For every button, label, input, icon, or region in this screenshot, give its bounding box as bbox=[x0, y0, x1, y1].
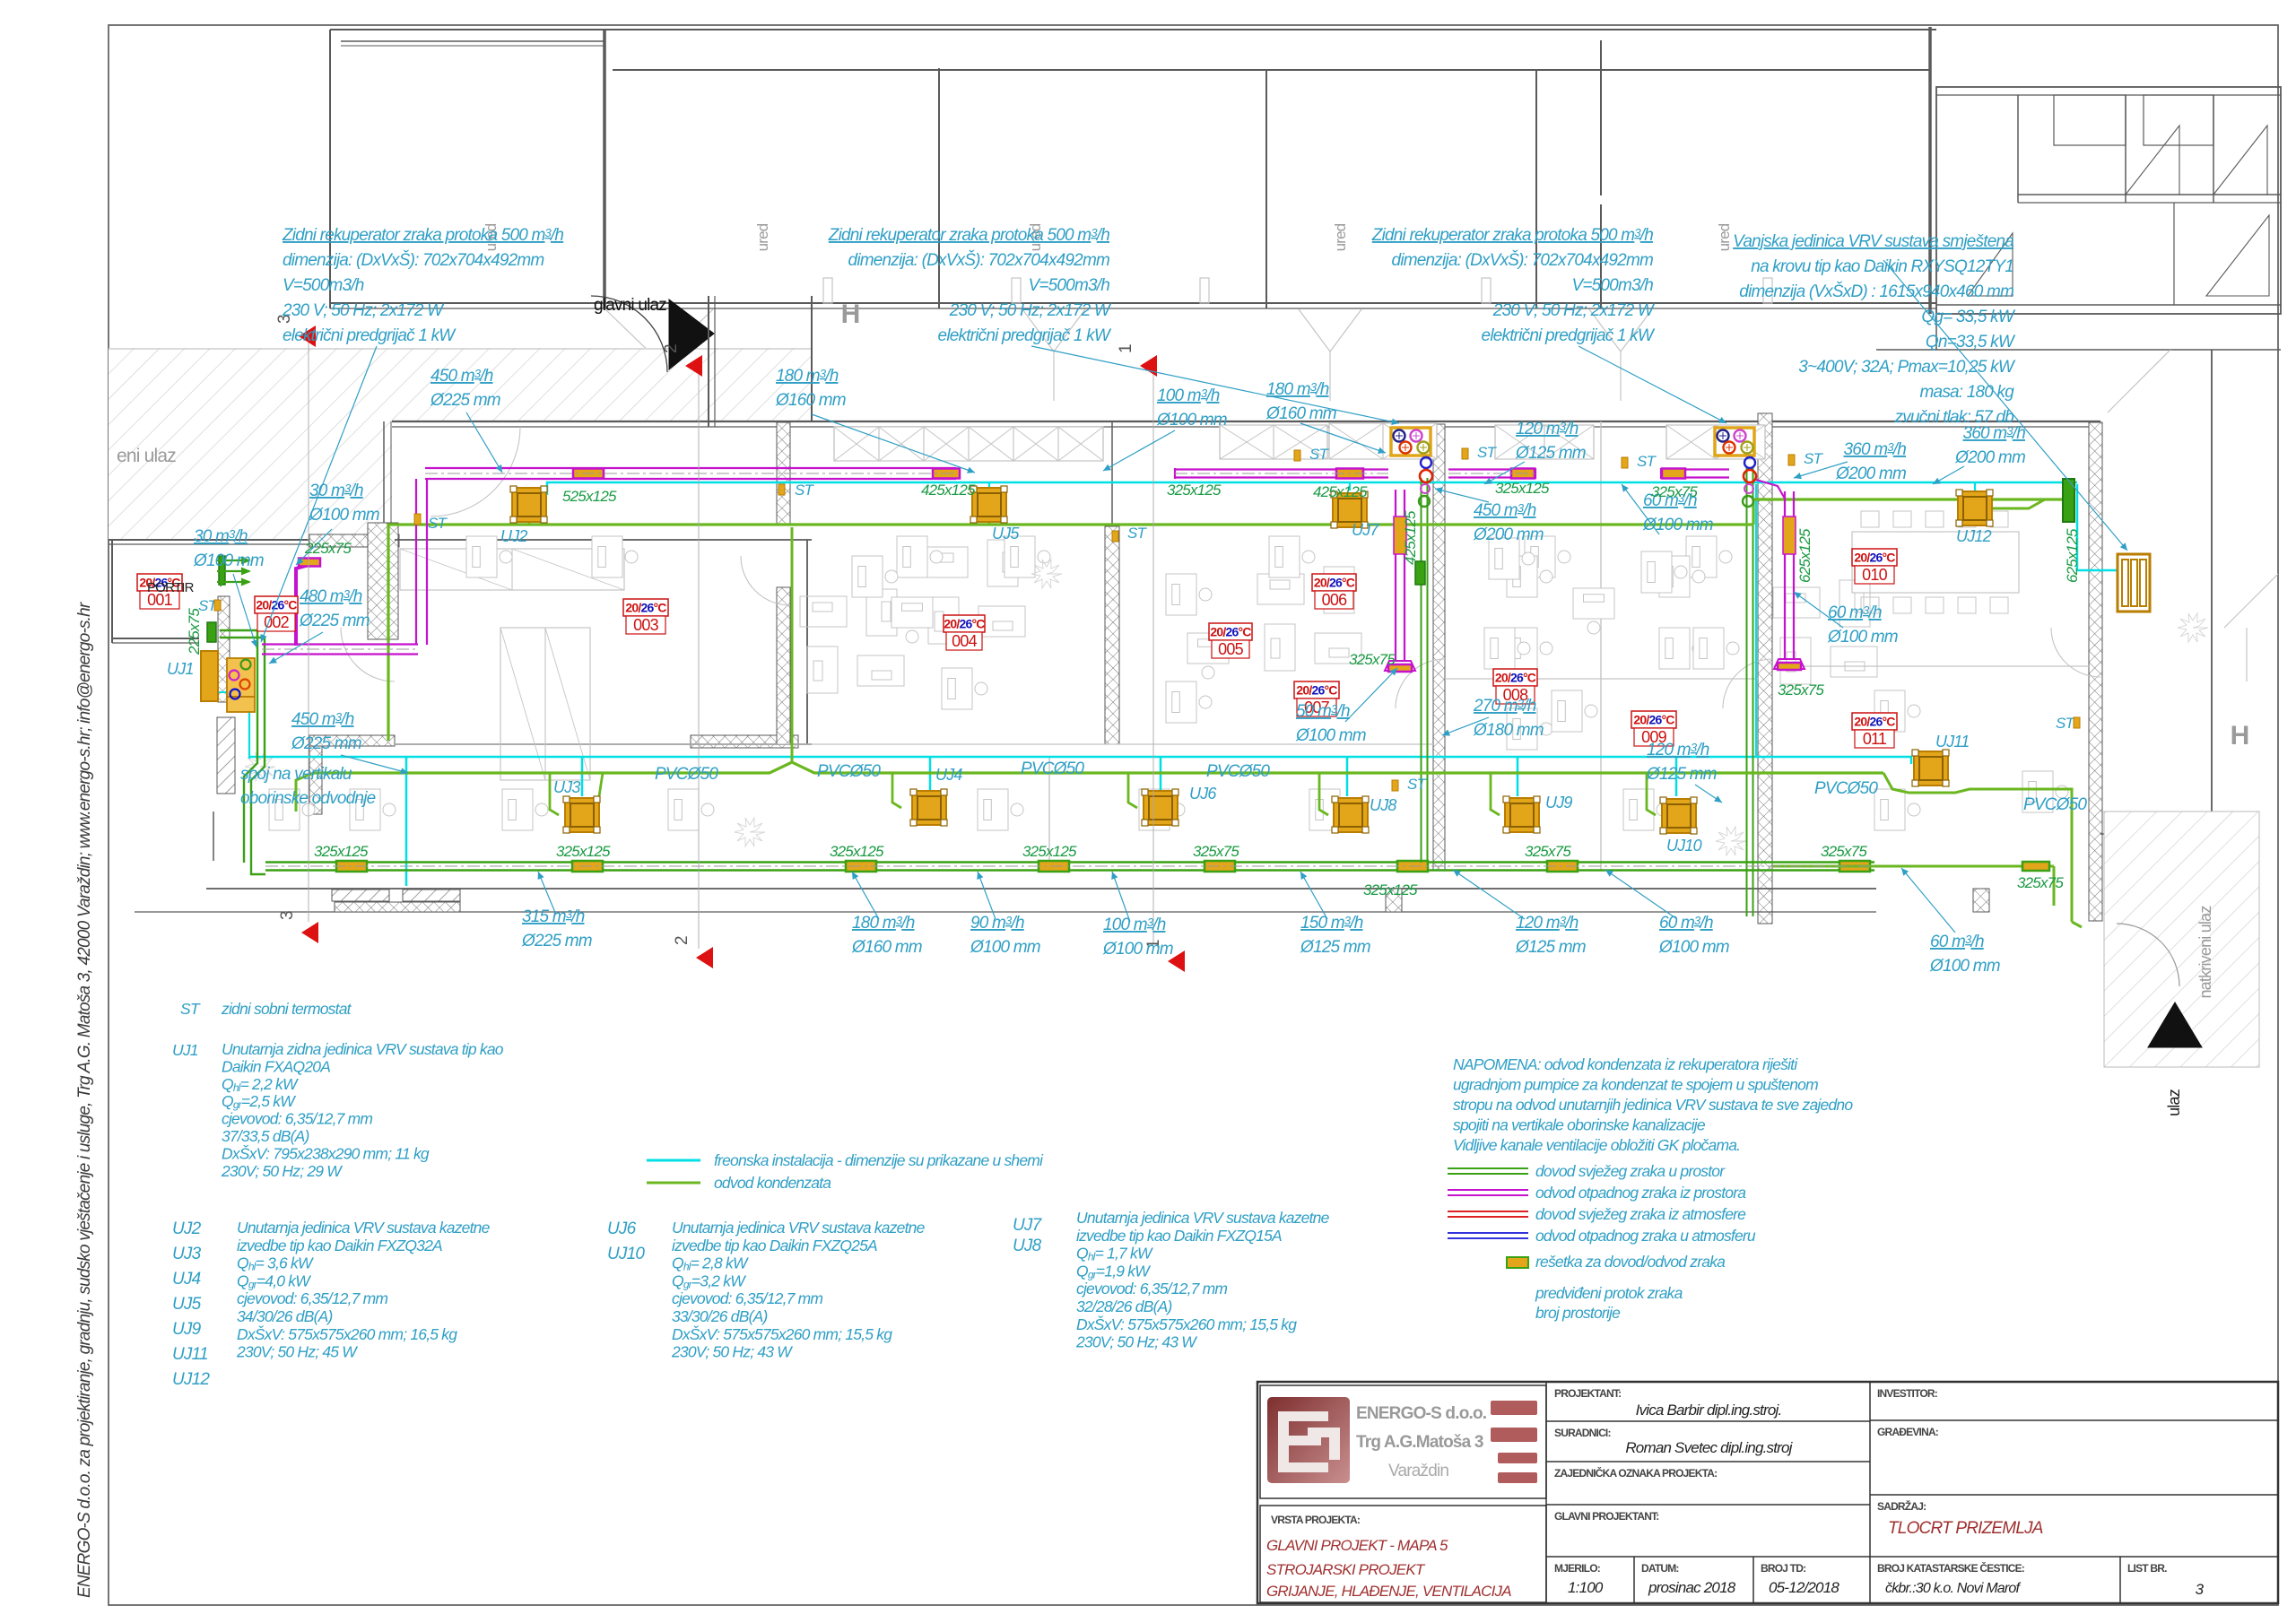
svg-text:Ø225 mm: Ø225 mm bbox=[291, 734, 361, 753]
svg-text:ured: ured bbox=[754, 223, 771, 251]
svg-text:broj prostorije: broj prostorije bbox=[1535, 1304, 1621, 1322]
svg-text:625x125: 625x125 bbox=[2064, 528, 2081, 583]
svg-text:425x125: 425x125 bbox=[1402, 510, 1419, 565]
svg-text:UJ10: UJ10 bbox=[1666, 837, 1702, 855]
svg-text:230 V; 50 Hz; 2x172 W: 230 V; 50 Hz; 2x172 W bbox=[1492, 301, 1656, 320]
svg-text:PVCØ50: PVCØ50 bbox=[2023, 795, 2087, 814]
svg-text:230 V; 50 Hz; 2x172 W: 230 V; 50 Hz; 2x172 W bbox=[949, 301, 1112, 320]
svg-text:120 m3/h: 120 m3/h bbox=[1516, 914, 1578, 933]
svg-text:dimenzija: (DxVxŠ): 702x704x49: dimenzija: (DxVxŠ): 702x704x492mm bbox=[848, 250, 1109, 270]
svg-text:PORTIR: PORTIR bbox=[147, 580, 195, 595]
svg-text:električni predgrijač 1 kW: električni predgrijač 1 kW bbox=[938, 326, 1112, 345]
svg-text:325x125: 325x125 bbox=[830, 843, 884, 860]
svg-text:230V; 50 Hz; 43 W: 230V; 50 Hz; 43 W bbox=[1075, 1333, 1197, 1351]
svg-text:NAPOMENA: odvod kondenzata iz: NAPOMENA: odvod kondenzata iz rekuperato… bbox=[1453, 1055, 1798, 1073]
svg-text:120 m3/h: 120 m3/h bbox=[1516, 420, 1578, 438]
svg-text:oborinske odvodnje: oborinske odvodnje bbox=[240, 789, 376, 808]
svg-text:Ø225 mm: Ø225 mm bbox=[299, 612, 370, 630]
svg-text:zidni sobni termostat: zidni sobni termostat bbox=[221, 1000, 352, 1018]
svg-text:BROJ KATASTARSKE ČESTICE:: BROJ KATASTARSKE ČESTICE: bbox=[1877, 1561, 2024, 1575]
svg-text:Ø180 mm: Ø180 mm bbox=[1473, 721, 1544, 740]
svg-text:Ø160 mm: Ø160 mm bbox=[851, 938, 922, 957]
svg-text:3: 3 bbox=[2196, 1581, 2205, 1598]
svg-text:UJ2: UJ2 bbox=[172, 1219, 202, 1238]
svg-text:UJ10: UJ10 bbox=[607, 1245, 645, 1263]
svg-text:dimenzija (VxŠxD) : 1615x940x4: dimenzija (VxŠxD) : 1615x940x460 mm bbox=[1739, 282, 2013, 301]
svg-text:20/26°C: 20/26°C bbox=[1296, 683, 1337, 698]
svg-text:LIST BR.: LIST BR. bbox=[2127, 1562, 2167, 1575]
svg-text:UJ2: UJ2 bbox=[500, 527, 527, 545]
svg-text:odvod otpadnog zraka iz prosto: odvod otpadnog zraka iz prostora bbox=[1535, 1184, 1746, 1202]
svg-text:ulaz: ulaz bbox=[2165, 1089, 2183, 1116]
svg-text:ENERGO-S d.o.o. za projektiran: ENERGO-S d.o.o. za projektiranje, gradnj… bbox=[75, 602, 94, 1598]
svg-text:Ø225 mm: Ø225 mm bbox=[430, 391, 500, 410]
svg-text:325x125: 325x125 bbox=[314, 843, 369, 860]
svg-text:DxŠxV: 795x238x290 mm; 11 kg: DxŠxV: 795x238x290 mm; 11 kg bbox=[222, 1143, 430, 1162]
svg-text:20/26°C: 20/26°C bbox=[1633, 713, 1674, 727]
svg-text:ST: ST bbox=[795, 482, 815, 499]
svg-text:Ø100 mm: Ø100 mm bbox=[1102, 940, 1173, 959]
svg-text:Ø200 mm: Ø200 mm bbox=[1473, 525, 1544, 544]
svg-text:Ø100 mm: Ø100 mm bbox=[1929, 957, 2000, 976]
svg-text:525x125: 525x125 bbox=[562, 488, 617, 505]
svg-text:625x125: 625x125 bbox=[1796, 528, 1813, 583]
svg-text:002: 002 bbox=[264, 613, 289, 631]
svg-text:ST: ST bbox=[180, 1000, 201, 1018]
svg-text:450 m3/h: 450 m3/h bbox=[291, 710, 354, 729]
svg-text:izvedbe tip kao Daikin FXZQ25A: izvedbe tip kao Daikin FXZQ25A bbox=[672, 1237, 877, 1254]
svg-text:325x75: 325x75 bbox=[1525, 843, 1571, 860]
svg-text:325x75: 325x75 bbox=[1349, 651, 1396, 668]
svg-text:Zidni rekuperator zraka protok: Zidni rekuperator zraka protoka 500 m3/h bbox=[828, 226, 1109, 245]
svg-text:325x75: 325x75 bbox=[2017, 874, 2064, 891]
svg-text:Ø100 mm: Ø100 mm bbox=[1827, 628, 1898, 647]
svg-text:Qgr=1,9 kW: Qgr=1,9 kW bbox=[1076, 1262, 1151, 1280]
svg-text:GLAVNI PROJEKT - MAPA 5: GLAVNI PROJEKT - MAPA 5 bbox=[1266, 1537, 1448, 1554]
svg-text:cjevovod: 6,35/12,7 mm: cjevovod: 6,35/12,7 mm bbox=[222, 1110, 372, 1128]
svg-text:GRIJANJE, HLAĐENJE, VENTILACIJ: GRIJANJE, HLAĐENJE, VENTILACIJA bbox=[1266, 1583, 1511, 1600]
svg-text:32/28/26 dB(A): 32/28/26 dB(A) bbox=[1076, 1298, 1172, 1315]
svg-text:230V; 50 Hz; 45 W: 230V; 50 Hz; 45 W bbox=[236, 1343, 358, 1361]
svg-text:Vanjska jedinica VRV sustava s: Vanjska jedinica VRV sustava smještena bbox=[1733, 232, 2013, 251]
svg-text:004: 004 bbox=[952, 632, 977, 650]
svg-text:Qgr=2,5 kW: Qgr=2,5 kW bbox=[222, 1092, 296, 1111]
svg-text:UJ8: UJ8 bbox=[1370, 796, 1396, 814]
svg-text:Roman Svetec dipl.ing.stroj: Roman Svetec dipl.ing.stroj bbox=[1625, 1439, 1793, 1456]
svg-text:60 m3/h: 60 m3/h bbox=[1828, 603, 1882, 622]
svg-text:V=500m3/h: V=500m3/h bbox=[283, 276, 364, 295]
svg-text:006: 006 bbox=[1322, 591, 1347, 609]
svg-text:ured: ured bbox=[1332, 223, 1349, 251]
svg-text:Qg= 33,5 kW: Qg= 33,5 kW bbox=[1921, 308, 2015, 326]
svg-text:UJ12: UJ12 bbox=[1956, 527, 1992, 545]
svg-text:Ø160 mm: Ø160 mm bbox=[1265, 404, 1336, 423]
svg-text:450 m3/h: 450 m3/h bbox=[1474, 501, 1536, 520]
svg-text:dovod svježeg zraka u prostor: dovod svježeg zraka u prostor bbox=[1535, 1162, 1726, 1180]
svg-text:425x125: 425x125 bbox=[921, 482, 976, 499]
svg-text:MJERILO:: MJERILO: bbox=[1554, 1562, 1600, 1575]
svg-text:Ø125 mm: Ø125 mm bbox=[1300, 938, 1370, 957]
svg-text:3~400V; 32A; Pmax=10,25 kW: 3~400V; 32A; Pmax=10,25 kW bbox=[1798, 358, 2016, 377]
svg-text:50 m3/h: 50 m3/h bbox=[1296, 702, 1350, 721]
svg-text:Qn=33,5 kW: Qn=33,5 kW bbox=[1926, 333, 2016, 352]
svg-text:cjevovod: 6,35/12,7 mm: cjevovod: 6,35/12,7 mm bbox=[1076, 1280, 1227, 1298]
svg-text:Vidljive kanale ventilacije ob: Vidljive kanale ventilacije obložiti GK … bbox=[1453, 1136, 1740, 1154]
svg-text:1: 1 bbox=[1117, 344, 1135, 353]
svg-text:Ø160 mm: Ø160 mm bbox=[775, 391, 846, 410]
svg-text:GLAVNI PROJEKTANT:: GLAVNI PROJEKTANT: bbox=[1554, 1510, 1659, 1523]
svg-text:Ø100 mm: Ø100 mm bbox=[1295, 726, 1366, 745]
svg-text:225x75: 225x75 bbox=[186, 608, 203, 655]
svg-text:glavni ulaz: glavni ulaz bbox=[594, 296, 666, 315]
svg-text:230V; 50 Hz; 43 W: 230V; 50 Hz; 43 W bbox=[671, 1343, 793, 1361]
svg-text:450 m3/h: 450 m3/h bbox=[430, 367, 493, 386]
svg-text:izvedbe tip kao Daikin FXZQ15A: izvedbe tip kao Daikin FXZQ15A bbox=[1076, 1227, 1282, 1245]
svg-text:dovod svježeg zraka iz atmosfe: dovod svježeg zraka iz atmosfere bbox=[1535, 1205, 1746, 1223]
svg-text:ZAJEDNIČKA OZNAKA PROJEKTA:: ZAJEDNIČKA OZNAKA PROJEKTA: bbox=[1554, 1466, 1717, 1480]
svg-text:STROJARSKI PROJEKT: STROJARSKI PROJEKT bbox=[1266, 1561, 1426, 1578]
svg-text:90 m3/h: 90 m3/h bbox=[970, 914, 1024, 933]
svg-text:DxŠxV: 575x575x260 mm; 16,5 kg: DxŠxV: 575x575x260 mm; 16,5 kg bbox=[237, 1324, 457, 1343]
svg-text:SADRŽAJ:: SADRŽAJ: bbox=[1877, 1499, 1926, 1513]
svg-text:eni ulaz: eni ulaz bbox=[117, 446, 176, 466]
svg-text:spoj na vertikalu: spoj na vertikalu bbox=[240, 765, 352, 784]
svg-text:UJ3: UJ3 bbox=[172, 1245, 202, 1263]
svg-text:Ø100 mm: Ø100 mm bbox=[1658, 938, 1729, 957]
svg-text:električni predgrijač 1 kW: električni predgrijač 1 kW bbox=[1482, 326, 1656, 345]
svg-text:325x75: 325x75 bbox=[1193, 843, 1239, 860]
svg-text:električni predgrijač 1 kW: električni predgrijač 1 kW bbox=[283, 326, 457, 345]
svg-text:Unutarnja jedinica VRV sustava: Unutarnja jedinica VRV sustava kazetne bbox=[1076, 1209, 1330, 1227]
svg-text:DxŠxV: 575x575x260 mm; 15,5 kg: DxŠxV: 575x575x260 mm; 15,5 kg bbox=[1076, 1315, 1297, 1333]
svg-text:UJ5: UJ5 bbox=[172, 1295, 202, 1314]
svg-text:325x125: 325x125 bbox=[1022, 843, 1077, 860]
svg-text:predviđeni protok zraka: predviđeni protok zraka bbox=[1535, 1284, 1683, 1302]
svg-text:20/26°C: 20/26°C bbox=[1495, 671, 1536, 685]
svg-text:425x125: 425x125 bbox=[1313, 483, 1368, 500]
svg-text:011: 011 bbox=[1863, 730, 1887, 748]
svg-text:360 m3/h: 360 m3/h bbox=[1844, 440, 1907, 459]
svg-text:freonska instalacija - dimenzi: freonska instalacija - dimenzije su prik… bbox=[714, 1151, 1044, 1169]
svg-text:20/26°C: 20/26°C bbox=[1854, 715, 1895, 729]
svg-text:UJ1: UJ1 bbox=[167, 660, 194, 678]
svg-text:DxŠxV: 575x575x260 mm; 15,5 kg: DxŠxV: 575x575x260 mm; 15,5 kg bbox=[672, 1324, 892, 1343]
svg-text:325x125: 325x125 bbox=[1495, 480, 1550, 497]
svg-text:UJ9: UJ9 bbox=[1545, 794, 1572, 811]
svg-text:V=500m3/h: V=500m3/h bbox=[1028, 276, 1109, 295]
svg-text:UJ7: UJ7 bbox=[1013, 1216, 1043, 1235]
svg-text:325x75: 325x75 bbox=[1651, 483, 1698, 500]
svg-text:PVCØ50: PVCØ50 bbox=[1814, 779, 1878, 798]
svg-text:Daikin FXAQ20A: Daikin FXAQ20A bbox=[222, 1057, 330, 1075]
svg-text:UJ1: UJ1 bbox=[172, 1041, 198, 1059]
svg-text:20/26°C: 20/26°C bbox=[625, 601, 666, 615]
svg-text:BROJ TD:: BROJ TD: bbox=[1761, 1562, 1805, 1575]
svg-text:360 m3/h: 360 m3/h bbox=[1963, 424, 2026, 443]
svg-text:spojiti na vertikale oborinske: spojiti na vertikale oborinske kanalizac… bbox=[1453, 1116, 1706, 1134]
svg-text:UJ11: UJ11 bbox=[1935, 733, 1970, 751]
svg-text:UJ12: UJ12 bbox=[172, 1370, 210, 1389]
svg-text:ST: ST bbox=[1804, 450, 1824, 467]
svg-text:PVCØ50: PVCØ50 bbox=[1021, 759, 1084, 778]
svg-text:VRSTA PROJEKTA:: VRSTA PROJEKTA: bbox=[1271, 1514, 1360, 1526]
svg-text:UJ6: UJ6 bbox=[607, 1219, 637, 1238]
svg-text:30 m3/h: 30 m3/h bbox=[194, 527, 248, 546]
svg-text:120 m3/h: 120 m3/h bbox=[1647, 741, 1709, 759]
svg-text:prosinac 2018: prosinac 2018 bbox=[1648, 1579, 1736, 1596]
svg-text:PVCØ50: PVCØ50 bbox=[817, 762, 881, 781]
svg-text:PROJEKTANT:: PROJEKTANT: bbox=[1554, 1387, 1621, 1400]
svg-text:20/26°C: 20/26°C bbox=[256, 598, 297, 612]
svg-text:003: 003 bbox=[633, 616, 658, 634]
svg-text:ST: ST bbox=[1477, 444, 1498, 461]
svg-text:na krovu tip kao Daikin RXYSQ1: na krovu tip kao Daikin RXYSQ12TY1 bbox=[1751, 257, 2013, 276]
svg-text:Ø125 mm: Ø125 mm bbox=[1515, 938, 1586, 957]
svg-text:H: H bbox=[841, 299, 860, 329]
svg-text:PVCØ50: PVCØ50 bbox=[655, 765, 718, 784]
svg-text:325x75: 325x75 bbox=[1778, 681, 1824, 699]
svg-text:225x75: 225x75 bbox=[304, 540, 352, 557]
svg-text:Ø100 mm: Ø100 mm bbox=[970, 938, 1040, 957]
svg-text:315 m3/h: 315 m3/h bbox=[522, 907, 585, 926]
svg-text:natkriveni ulaz: natkriveni ulaz bbox=[2196, 906, 2214, 999]
svg-text:V=500m3/h: V=500m3/h bbox=[1571, 276, 1653, 295]
svg-text:Qgr=4,0 kW: Qgr=4,0 kW bbox=[237, 1271, 311, 1290]
svg-text:2: 2 bbox=[673, 936, 691, 945]
svg-text:010: 010 bbox=[1862, 566, 1887, 584]
svg-text:SURADNICI:: SURADNICI: bbox=[1554, 1427, 1611, 1439]
svg-text:UJ8: UJ8 bbox=[1013, 1237, 1042, 1255]
svg-text:ST: ST bbox=[1309, 446, 1330, 463]
svg-text:150 m3/h: 150 m3/h bbox=[1300, 914, 1363, 933]
svg-text:čkbr.:30 k.o. Novi Marof: čkbr.:30 k.o. Novi Marof bbox=[1885, 1581, 2022, 1596]
svg-text:Zidni rekuperator zraka protok: Zidni rekuperator zraka protoka 500 m3/h bbox=[1371, 226, 1653, 245]
svg-text:230 V; 50 Hz; 2x172 W: 230 V; 50 Hz; 2x172 W bbox=[282, 301, 445, 320]
svg-text:37/33,5 dB(A): 37/33,5 dB(A) bbox=[222, 1127, 309, 1145]
svg-text:ENERGO-S d.o.o.: ENERGO-S d.o.o. bbox=[1356, 1404, 1486, 1423]
svg-text:005: 005 bbox=[1218, 640, 1243, 658]
svg-text:480 m3/h: 480 m3/h bbox=[300, 587, 362, 606]
svg-text:Qgr=3,2 kW: Qgr=3,2 kW bbox=[672, 1271, 746, 1290]
svg-text:Ø100 mm: Ø100 mm bbox=[1156, 411, 1227, 430]
svg-text:dimenzija: (DxVxŠ): 702x704x49: dimenzija: (DxVxŠ): 702x704x492mm bbox=[1392, 250, 1653, 270]
svg-text:180 m3/h: 180 m3/h bbox=[1266, 380, 1329, 399]
svg-text:Ø125 mm: Ø125 mm bbox=[1646, 765, 1717, 784]
svg-text:stropu na odvod unutarnjih jed: stropu na odvod unutarnjih jedinica VRV … bbox=[1453, 1096, 1853, 1114]
svg-text:180 m3/h: 180 m3/h bbox=[852, 914, 915, 933]
svg-text:ST: ST bbox=[1407, 776, 1428, 793]
svg-text:Trg A.G.Matoša 3: Trg A.G.Matoša 3 bbox=[1356, 1433, 1483, 1452]
svg-text:Ø225 mm: Ø225 mm bbox=[521, 932, 592, 950]
svg-text:INVESTITOR:: INVESTITOR: bbox=[1877, 1387, 1937, 1400]
svg-text:UJ11: UJ11 bbox=[172, 1345, 208, 1364]
svg-text:Ø200 mm: Ø200 mm bbox=[1954, 448, 2025, 467]
svg-text:Unutarnja jedinica VRV sustava: Unutarnja jedinica VRV sustava kazetne bbox=[672, 1219, 926, 1237]
svg-text:GRAĐEVINA:: GRAĐEVINA: bbox=[1877, 1426, 1938, 1438]
svg-text:Ø125 mm: Ø125 mm bbox=[1515, 444, 1586, 463]
svg-text:PVCØ50: PVCØ50 bbox=[1206, 762, 1270, 781]
svg-text:UJ7: UJ7 bbox=[1352, 521, 1379, 539]
svg-text:UJ3: UJ3 bbox=[553, 778, 580, 796]
svg-text:ST: ST bbox=[1637, 453, 1657, 470]
svg-text:cjevovod: 6,35/12,7 mm: cjevovod: 6,35/12,7 mm bbox=[672, 1289, 822, 1307]
svg-text:325x125: 325x125 bbox=[1363, 881, 1418, 898]
svg-text:odvod otpadnog zraka u atmosfe: odvod otpadnog zraka u atmosferu bbox=[1535, 1227, 1756, 1245]
svg-text:30 m3/h: 30 m3/h bbox=[309, 482, 363, 500]
svg-text:33/30/26 dB(A): 33/30/26 dB(A) bbox=[672, 1307, 768, 1325]
svg-text:ST: ST bbox=[1127, 525, 1148, 542]
svg-text:20/26°C: 20/26°C bbox=[1314, 576, 1355, 590]
svg-text:Ø100 mm: Ø100 mm bbox=[193, 551, 264, 570]
svg-text:UJ9: UJ9 bbox=[172, 1320, 202, 1339]
svg-text:325x125: 325x125 bbox=[556, 843, 611, 860]
svg-text:3: 3 bbox=[278, 911, 297, 920]
svg-text:Zidni rekuperator zraka protok: Zidni rekuperator zraka protoka 500 m3/h bbox=[282, 226, 563, 245]
svg-text:DATUM:: DATUM: bbox=[1641, 1562, 1679, 1575]
svg-text:34/30/26 dB(A): 34/30/26 dB(A) bbox=[237, 1307, 333, 1325]
svg-text:Unutarnja jedinica VRV sustava: Unutarnja jedinica VRV sustava kazetne bbox=[237, 1219, 491, 1237]
svg-text:05-12/2018: 05-12/2018 bbox=[1769, 1579, 1839, 1596]
svg-text:1:100: 1:100 bbox=[1568, 1579, 1604, 1596]
svg-text:ST: ST bbox=[2056, 715, 2076, 732]
svg-text:ST: ST bbox=[428, 515, 448, 532]
svg-text:180 m3/h: 180 m3/h bbox=[776, 367, 839, 386]
svg-text:2: 2 bbox=[662, 344, 681, 353]
svg-text:UJ5: UJ5 bbox=[992, 525, 1020, 542]
svg-text:100 m3/h: 100 m3/h bbox=[1103, 916, 1166, 934]
svg-text:UJ4: UJ4 bbox=[935, 766, 962, 784]
svg-text:odvod kondenzata: odvod kondenzata bbox=[714, 1174, 831, 1192]
svg-text:H: H bbox=[2231, 721, 2249, 751]
svg-text:60 m3/h: 60 m3/h bbox=[1659, 914, 1713, 933]
svg-text:Unutarnja zidna jedinica VRV s: Unutarnja zidna jedinica VRV sustava tip… bbox=[222, 1040, 504, 1058]
svg-text:Ivica Barbir dipl.ing.stroj.: Ivica Barbir dipl.ing.stroj. bbox=[1636, 1402, 1782, 1419]
svg-text:230V; 50 Hz; 29 W: 230V; 50 Hz; 29 W bbox=[221, 1162, 343, 1180]
svg-text:TLOCRT PRIZEMLJA: TLOCRT PRIZEMLJA bbox=[1888, 1519, 2043, 1538]
svg-text:325x125: 325x125 bbox=[1167, 482, 1222, 499]
svg-text:325x75: 325x75 bbox=[1821, 843, 1867, 860]
svg-text:Ø100 mm: Ø100 mm bbox=[309, 506, 379, 525]
svg-text:Ø200 mm: Ø200 mm bbox=[1835, 464, 1906, 483]
svg-text:20/26°C: 20/26°C bbox=[1854, 551, 1895, 565]
svg-text:UJ4: UJ4 bbox=[172, 1270, 201, 1289]
svg-text:UJ6: UJ6 bbox=[1189, 785, 1217, 803]
svg-text:cjevovod: 6,35/12,7 mm: cjevovod: 6,35/12,7 mm bbox=[237, 1289, 387, 1307]
svg-text:Varaždin: Varaždin bbox=[1388, 1462, 1448, 1480]
svg-text:270 m3/h: 270 m3/h bbox=[1473, 697, 1536, 716]
svg-text:rešetka za dovod/odvod zraka: rešetka za dovod/odvod zraka bbox=[1535, 1253, 1726, 1271]
svg-text:20/26°C: 20/26°C bbox=[944, 617, 985, 631]
svg-text:60 m3/h: 60 m3/h bbox=[1930, 933, 1984, 951]
svg-text:ugradnjom pumpice za kondenzat: ugradnjom pumpice za kondenzat te spojem… bbox=[1453, 1076, 1818, 1094]
svg-text:100 m3/h: 100 m3/h bbox=[1157, 386, 1220, 405]
svg-text:20/26°C: 20/26°C bbox=[1210, 625, 1251, 639]
svg-text:dimenzija: (DxVxŠ): 702x704x49: dimenzija: (DxVxŠ): 702x704x492mm bbox=[283, 250, 544, 270]
svg-text:izvedbe tip kao Daikin FXZQ32A: izvedbe tip kao Daikin FXZQ32A bbox=[237, 1237, 442, 1254]
svg-text:ured: ured bbox=[1716, 223, 1733, 251]
